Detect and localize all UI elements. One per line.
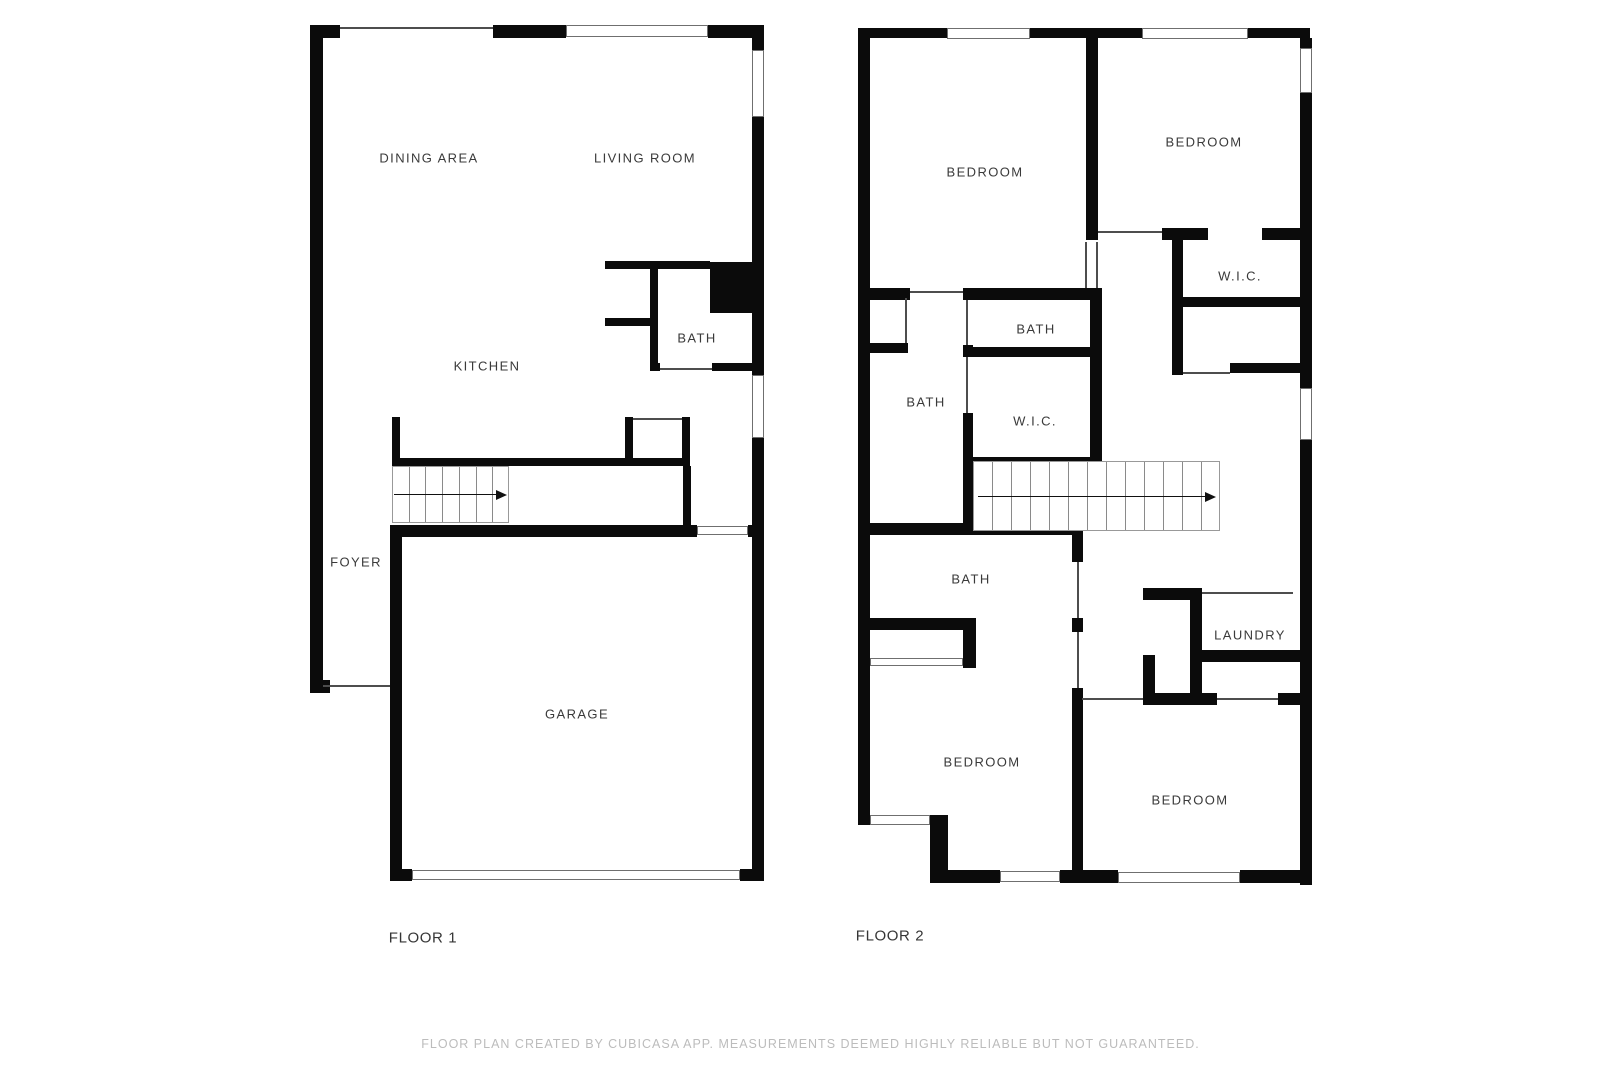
- room-label: DINING AREA: [379, 151, 478, 166]
- wall-segment: [710, 262, 764, 313]
- wall-segment: [605, 318, 650, 326]
- wall-segment: [752, 117, 764, 262]
- stair-direction-arrow: [394, 494, 496, 495]
- room-label: KITCHEN: [454, 359, 521, 374]
- window-opening: [870, 658, 963, 666]
- wall-segment: [712, 363, 753, 371]
- wall-segment: [1300, 93, 1312, 388]
- room-label: FOYER: [330, 555, 382, 570]
- wall-segment: [930, 870, 1000, 883]
- window-opening: [697, 526, 748, 535]
- window-opening: [1000, 871, 1060, 882]
- wall-segment: [870, 343, 908, 353]
- wall-segment: [625, 417, 633, 458]
- door-opening-line: [323, 685, 390, 687]
- window-opening: [870, 815, 930, 825]
- room-label: GARAGE: [545, 707, 609, 722]
- door-opening-line: [633, 418, 682, 420]
- wall-segment: [1240, 870, 1310, 883]
- floor-2-title: FLOOR 2: [856, 928, 924, 945]
- room-label: BEDROOM: [1166, 135, 1243, 150]
- wall-segment: [963, 630, 976, 668]
- window-opening: [752, 375, 764, 438]
- wall-segment: [650, 363, 660, 371]
- wall-segment: [858, 288, 910, 300]
- door-opening-line: [1202, 592, 1293, 594]
- wall-segment: [390, 869, 412, 881]
- room-label: BATH: [677, 331, 716, 346]
- wall-segment: [858, 618, 976, 630]
- wall-segment: [740, 869, 764, 881]
- wall-segment: [392, 525, 697, 537]
- wall-segment: [1230, 363, 1307, 373]
- window-opening: [1118, 872, 1240, 883]
- wall-segment: [963, 288, 1100, 300]
- door-opening-line: [1217, 698, 1278, 700]
- wall-segment: [963, 413, 973, 535]
- wall-segment: [1143, 693, 1217, 705]
- wall-segment: [708, 25, 764, 38]
- wall-segment: [963, 347, 1102, 357]
- stair-arrow-head: [496, 490, 507, 500]
- room-label: W.I.C.: [1218, 269, 1262, 284]
- wall-segment: [682, 417, 690, 458]
- room-label: BEDROOM: [947, 165, 1024, 180]
- wall-segment: [858, 28, 870, 825]
- wall-segment: [752, 38, 764, 50]
- room-label: LIVING ROOM: [594, 151, 696, 166]
- room-label: W.I.C.: [1013, 414, 1057, 429]
- door-opening-line: [1096, 242, 1098, 288]
- door-opening-line: [1085, 242, 1087, 288]
- door-opening-line: [905, 298, 907, 343]
- window-opening: [412, 870, 740, 880]
- footer-disclaimer: FLOOR PLAN CREATED BY CUBICASA APP. MEAS…: [0, 1037, 1621, 1051]
- wall-segment: [1202, 650, 1300, 662]
- wall-segment: [1300, 38, 1312, 48]
- wall-segment: [392, 417, 400, 458]
- wall-segment: [1090, 288, 1102, 467]
- wall-segment: [752, 438, 764, 881]
- room-label: BATH: [906, 395, 945, 410]
- wall-segment: [1300, 440, 1312, 885]
- wall-segment: [1248, 28, 1310, 38]
- door-opening-line: [340, 27, 493, 29]
- wall-segment: [493, 25, 566, 38]
- door-opening-line: [1077, 632, 1079, 688]
- wall-segment: [1162, 228, 1208, 240]
- window-opening: [752, 50, 764, 117]
- door-opening-line: [1098, 231, 1162, 233]
- wall-segment: [858, 28, 947, 38]
- wall-segment: [390, 525, 402, 881]
- window-opening: [1300, 48, 1312, 93]
- wall-segment: [392, 458, 690, 466]
- floor-plan-drawing: DINING AREALIVING ROOMBATHKITCHENFOYERGA…: [0, 0, 1621, 1080]
- window-opening: [566, 25, 708, 37]
- wall-segment: [310, 25, 340, 38]
- door-opening-line: [966, 300, 968, 345]
- stair-direction-arrow: [978, 496, 1205, 497]
- window-opening: [947, 28, 1030, 39]
- room-label: BEDROOM: [944, 755, 1021, 770]
- wall-segment: [1278, 693, 1300, 705]
- door-opening-line: [966, 357, 968, 413]
- wall-segment: [748, 525, 764, 537]
- window-opening: [1142, 28, 1248, 39]
- door-opening-line: [660, 368, 712, 370]
- room-label: BEDROOM: [1152, 793, 1229, 808]
- door-opening-line: [1082, 698, 1143, 700]
- wall-segment: [1190, 588, 1202, 705]
- wall-segment: [1072, 688, 1083, 872]
- wall-segment: [1183, 297, 1300, 307]
- floor-plan-canvas: DINING AREALIVING ROOMBATHKITCHENFOYERGA…: [0, 0, 1621, 1080]
- wall-segment: [1086, 38, 1098, 240]
- wall-segment: [1030, 28, 1142, 38]
- door-opening-line: [910, 291, 963, 293]
- wall-segment: [310, 25, 323, 693]
- wall-segment: [752, 313, 764, 375]
- window-opening: [1300, 388, 1312, 440]
- door-opening-line: [1077, 562, 1079, 618]
- room-label: BATH: [1016, 322, 1055, 337]
- wall-segment: [1060, 870, 1118, 883]
- wall-segment: [1072, 618, 1083, 632]
- wall-segment: [650, 261, 658, 363]
- wall-segment: [683, 466, 691, 525]
- room-label: LAUNDRY: [1214, 628, 1286, 643]
- stair-arrow-head: [1205, 492, 1216, 502]
- room-label: BATH: [951, 572, 990, 587]
- floor-1-title: FLOOR 1: [389, 930, 457, 947]
- door-opening-line: [1183, 372, 1230, 374]
- wall-segment: [1172, 233, 1183, 375]
- wall-segment: [1262, 228, 1300, 240]
